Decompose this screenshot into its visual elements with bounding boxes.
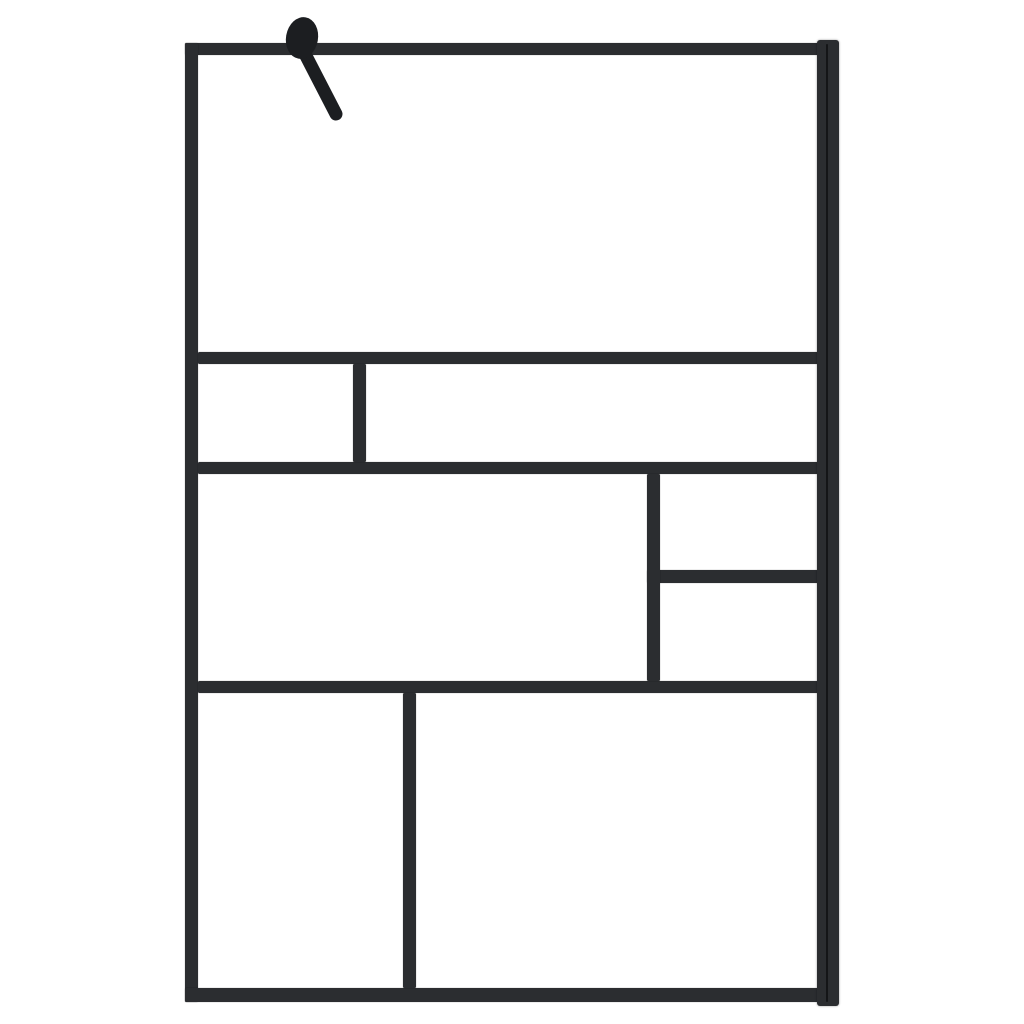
muntin-h4 [198, 681, 818, 693]
muntin-h3-right [647, 570, 818, 583]
glass-pane-row3-right-bottom [660, 583, 817, 681]
product-image [0, 0, 1024, 1024]
shower-screen [0, 0, 1024, 1024]
glass-pane-row2-left [198, 364, 353, 462]
frame-top-bar [185, 43, 819, 55]
glass-pane-row2-right [366, 364, 817, 462]
muntin-v3-row4 [403, 693, 416, 988]
muntin-h1 [198, 352, 818, 364]
muntin-h2 [198, 462, 818, 474]
frame-bottom-bar [185, 988, 819, 1002]
muntin-v1-row2 [353, 364, 366, 462]
glass-pane-row3-right-top [660, 474, 817, 570]
glass-pane-row4-left [198, 693, 403, 988]
muntin-v2-row3 [647, 474, 660, 681]
glass-pane-row4-right [416, 693, 817, 988]
frame-left-bar [185, 43, 198, 1002]
wall-profile-seam [826, 44, 828, 1002]
glass-pane-row3-left [198, 474, 647, 681]
glass-pane-top [198, 55, 817, 352]
wall-profile [817, 40, 839, 1006]
